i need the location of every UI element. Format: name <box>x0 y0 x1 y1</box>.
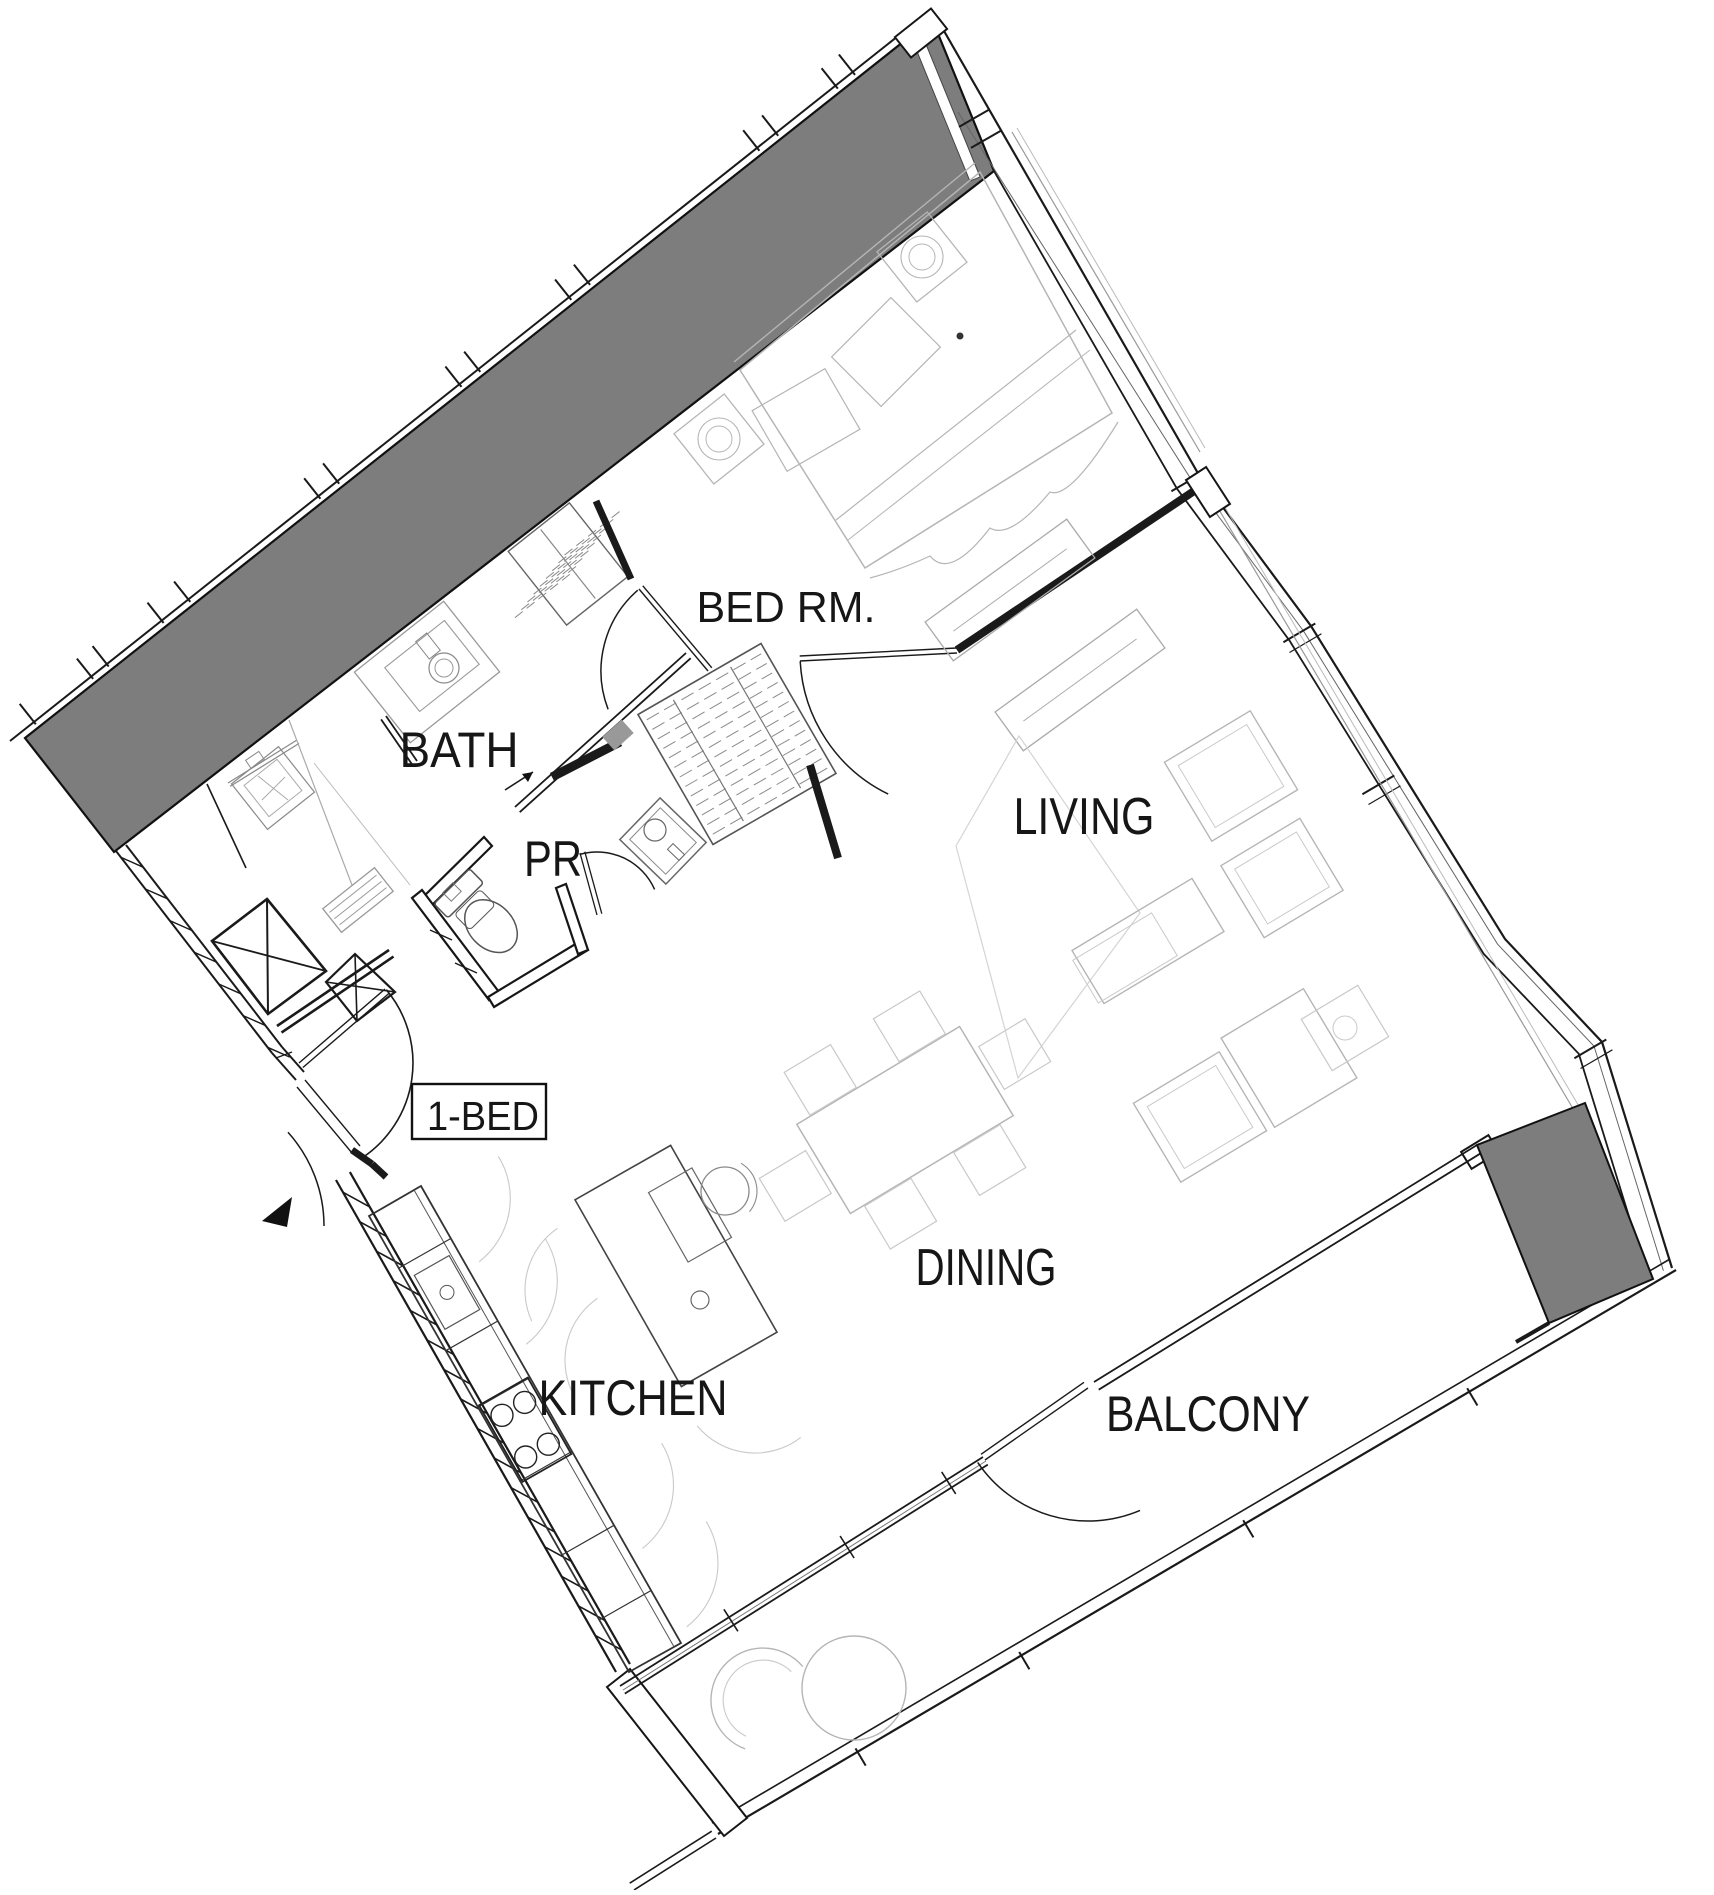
svg-text:DINING: DINING <box>916 1239 1057 1297</box>
svg-text:KITCHEN: KITCHEN <box>539 1370 728 1426</box>
svg-text:PR: PR <box>524 831 582 887</box>
svg-text:LIVING: LIVING <box>1014 788 1155 846</box>
svg-text:BALCONY: BALCONY <box>1106 1386 1310 1442</box>
svg-text:1-BED: 1-BED <box>427 1093 539 1139</box>
svg-text:BATH: BATH <box>400 722 519 778</box>
svg-text:BED RM.: BED RM. <box>697 583 876 632</box>
